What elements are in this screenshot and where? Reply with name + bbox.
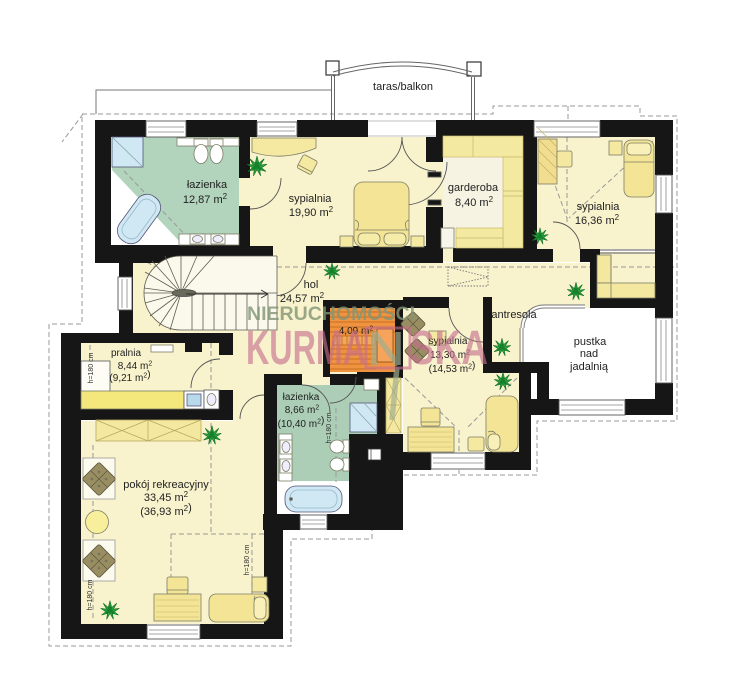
svg-text:pralnia: pralnia <box>111 348 141 359</box>
svg-text:garderoba: garderoba <box>448 182 499 194</box>
svg-text:antresola: antresola <box>491 309 537 321</box>
svg-text:SKA: SKA <box>410 322 488 375</box>
svg-text:pustka: pustka <box>574 336 607 348</box>
svg-text:KURMA: KURMA <box>246 322 366 375</box>
svg-text:19,90 m2: 19,90 m2 <box>289 205 334 219</box>
svg-text:12,87 m2: 12,87 m2 <box>183 192 228 206</box>
svg-text:33,45 m2: 33,45 m2 <box>144 490 189 504</box>
svg-text:h=180 cm: h=180 cm <box>244 544 251 575</box>
svg-text:sypialnia: sypialnia <box>577 201 621 213</box>
svg-text:h=180 cm: h=180 cm <box>326 412 333 443</box>
svg-text:hol: hol <box>304 279 319 291</box>
svg-text:taras/balkon: taras/balkon <box>373 81 433 93</box>
svg-text:sypialnia: sypialnia <box>289 193 333 205</box>
svg-text:łazienka: łazienka <box>187 179 228 191</box>
svg-text:jadalnią: jadalnią <box>569 361 609 373</box>
svg-text:8,40 m2: 8,40 m2 <box>455 195 494 209</box>
svg-text:nad: nad <box>580 348 598 360</box>
svg-text:8,66 m2: 8,66 m2 <box>285 405 320 417</box>
svg-text:24,57 m2: 24,57 m2 <box>280 291 325 305</box>
svg-text:h=180 cm: h=180 cm <box>87 579 94 610</box>
svg-text:łazienka: łazienka <box>283 392 320 403</box>
svg-text:pokój rekreacyjny: pokój rekreacyjny <box>123 479 209 491</box>
svg-text:h=180 cm: h=180 cm <box>88 352 95 383</box>
svg-text:16,36 m2: 16,36 m2 <box>575 213 620 227</box>
